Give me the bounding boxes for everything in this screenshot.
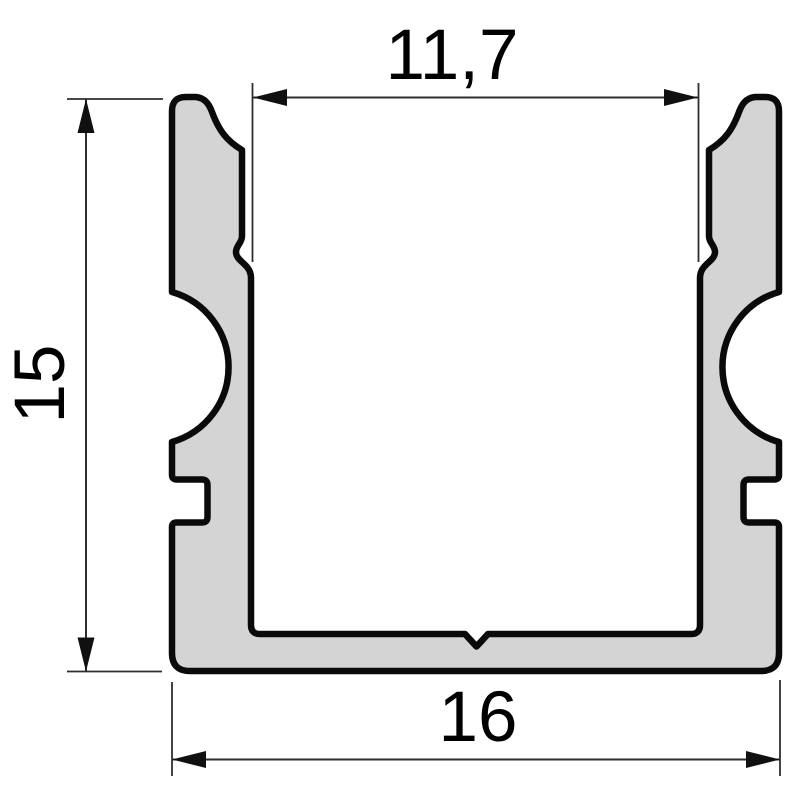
arrow-down-icon — [78, 638, 95, 672]
height-label: 15 — [1, 345, 80, 424]
arrow-up-icon — [78, 99, 95, 133]
arrow-left-icon — [172, 751, 206, 768]
profile-drawing: 11,7 15 16 — [0, 0, 800, 800]
height-dimension: 15 — [1, 99, 163, 672]
inner-width-dimension: 11,7 — [253, 16, 699, 262]
profile-cross-section — [172, 97, 779, 671]
outer-width-label: 16 — [439, 678, 518, 757]
outer-width-dimension: 16 — [172, 678, 780, 776]
arrow-right-icon — [664, 89, 698, 106]
inner-width-label: 11,7 — [386, 16, 519, 95]
arrow-left-icon — [253, 89, 287, 106]
arrow-right-icon — [746, 751, 780, 768]
technical-drawing-canvas: 11,7 15 16 — [0, 0, 800, 800]
